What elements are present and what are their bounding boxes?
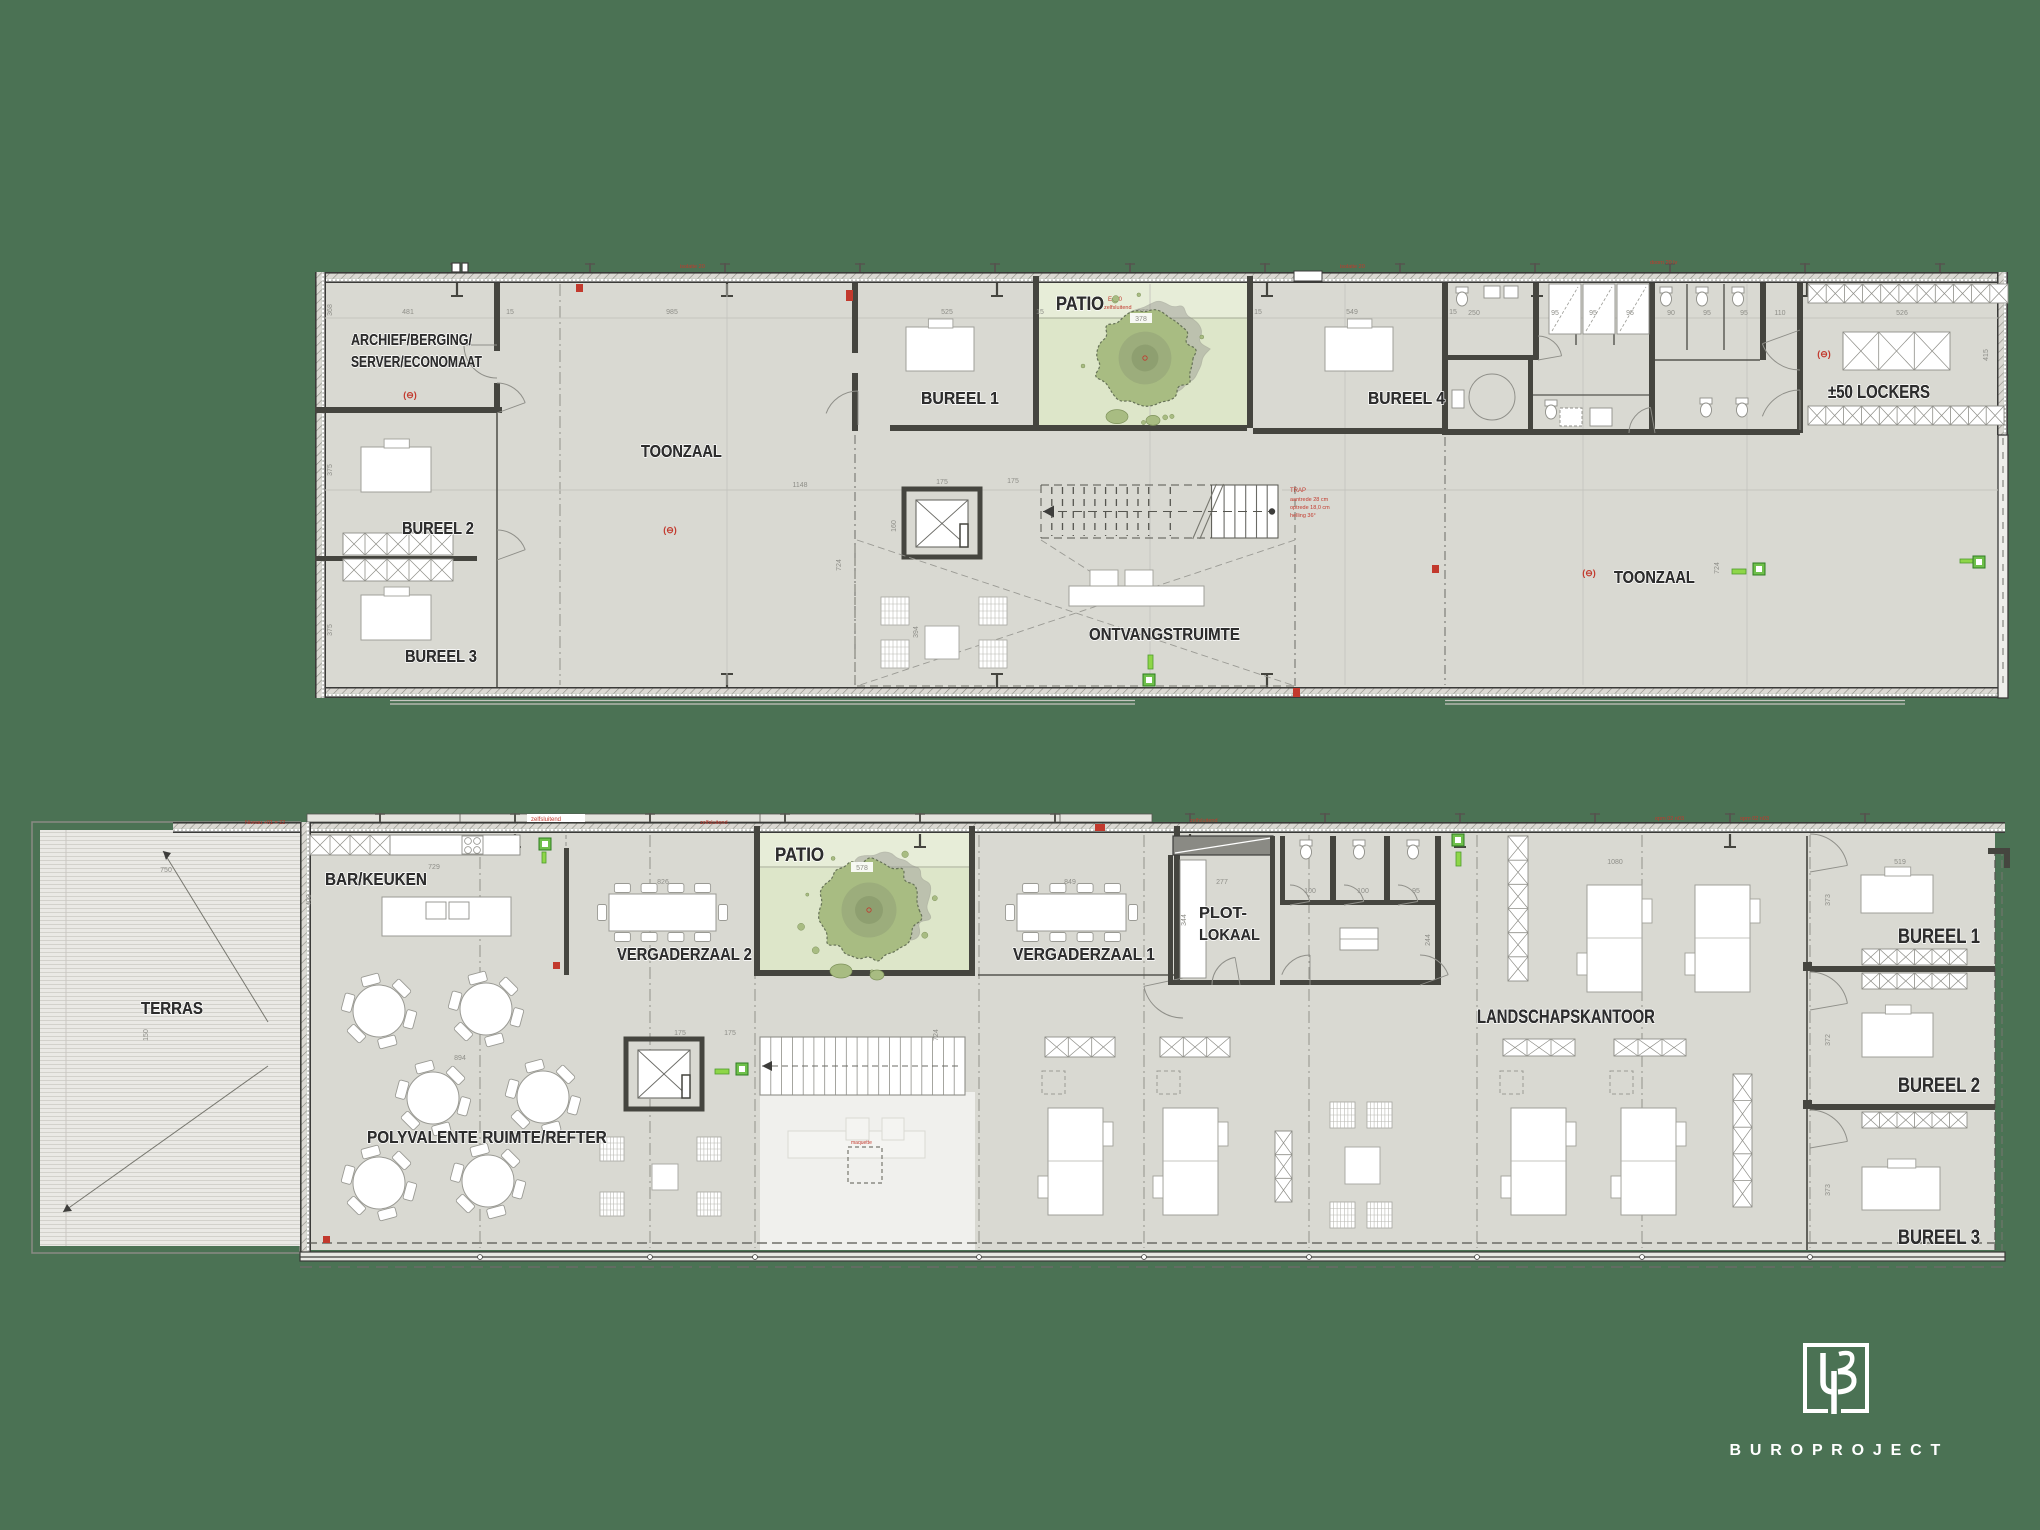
- svg-text:526: 526: [1896, 310, 1908, 317]
- svg-text:PLOT-: PLOT-: [1199, 904, 1247, 922]
- svg-text:578: 578: [856, 865, 868, 872]
- svg-text:409: 409: [306, 894, 313, 906]
- svg-text:175: 175: [1007, 478, 1019, 485]
- svg-text:ARCHIEF/BERGING/: ARCHIEF/BERGING/: [351, 332, 472, 350]
- svg-text:zelfsluitend: zelfsluitend: [1104, 305, 1132, 311]
- svg-text:95: 95: [1551, 310, 1559, 317]
- svg-text:(⊖): (⊖): [1582, 568, 1596, 578]
- svg-text:394: 394: [913, 626, 920, 638]
- svg-text:150: 150: [143, 1029, 150, 1041]
- svg-text:344: 344: [1181, 914, 1188, 926]
- svg-text:175: 175: [724, 1030, 736, 1037]
- svg-text:POLYVALENTE RUIMTE/REFTER: POLYVALENTE RUIMTE/REFTER: [367, 1127, 607, 1147]
- svg-text:SERVER/ECONOMAAT: SERVER/ECONOMAAT: [351, 353, 482, 371]
- svg-text:729: 729: [428, 864, 440, 871]
- svg-text:549: 549: [1346, 309, 1358, 316]
- svg-text:BUREEL 3: BUREEL 3: [1898, 1226, 1980, 1249]
- svg-text:175: 175: [936, 479, 948, 486]
- svg-text:opm 02 n03: opm 02 n03: [1655, 816, 1684, 822]
- svg-text:BUREEL 4: BUREEL 4: [1368, 388, 1446, 408]
- svg-text:1148: 1148: [792, 482, 807, 489]
- svg-text:100: 100: [1304, 888, 1316, 895]
- svg-text:VERGADERZAAL 2: VERGADERZAAL 2: [617, 945, 752, 965]
- svg-text:368: 368: [327, 304, 334, 316]
- svg-text:(⊖): (⊖): [663, 525, 677, 535]
- svg-text:373: 373: [1825, 1184, 1832, 1196]
- svg-text:VERGADERZAAL 1: VERGADERZAAL 1: [1013, 944, 1155, 964]
- svg-text:95: 95: [1703, 310, 1711, 317]
- svg-text:95: 95: [1412, 888, 1420, 895]
- svg-text:724: 724: [1714, 562, 1721, 574]
- svg-text:opm 02 n03: opm 02 n03: [1740, 816, 1769, 822]
- svg-text:LOKAAL: LOKAAL: [1199, 926, 1260, 944]
- svg-text:415: 415: [1983, 349, 1990, 361]
- svg-text:TOONZAAL: TOONZAAL: [1614, 568, 1695, 588]
- svg-text:375: 375: [327, 464, 334, 476]
- svg-text:ONTVANGSTRUIMTE: ONTVANGSTRUIMTE: [1089, 624, 1240, 645]
- svg-text:optrede 18,0 cm: optrede 18,0 cm: [1290, 505, 1330, 511]
- svg-text:B U R O P R O J E C T: B U R O P R O J E C T: [1729, 1442, 1942, 1459]
- svg-text:110: 110: [1774, 310, 1785, 317]
- svg-text:TERRAS: TERRAS: [141, 998, 203, 1019]
- svg-text:Niveau +01 = 22: Niveau +01 = 22: [245, 820, 285, 826]
- svg-text:maquette: maquette: [851, 1140, 872, 1146]
- svg-text:(⊖): (⊖): [403, 390, 417, 400]
- svg-text:15: 15: [506, 309, 514, 316]
- svg-text:BAR/KEUKEN: BAR/KEUKEN: [325, 869, 427, 889]
- svg-text:95: 95: [1589, 310, 1597, 317]
- svg-text:373: 373: [1825, 894, 1832, 906]
- svg-text:985: 985: [666, 309, 678, 316]
- svg-text:BUREEL 1: BUREEL 1: [1898, 925, 1980, 948]
- svg-text:724: 724: [836, 559, 843, 571]
- svg-text:15: 15: [1254, 309, 1262, 316]
- svg-text:244: 244: [1425, 934, 1432, 946]
- svg-text:378: 378: [1135, 316, 1147, 323]
- svg-text:15: 15: [1449, 309, 1457, 316]
- svg-text:PATIO: PATIO: [775, 844, 824, 865]
- svg-text:175: 175: [674, 1030, 686, 1037]
- svg-text:250: 250: [1468, 310, 1480, 317]
- svg-text:TRAP: TRAP: [1290, 488, 1306, 494]
- svg-text:372: 372: [1825, 1034, 1832, 1046]
- svg-text:LANDSCHAPSKANTOOR: LANDSCHAPSKANTOOR: [1477, 1006, 1655, 1027]
- svg-text:zelfsluitend: zelfsluitend: [700, 820, 728, 826]
- svg-text:724: 724: [933, 1029, 940, 1041]
- svg-text:100: 100: [1357, 888, 1369, 895]
- svg-text:160: 160: [891, 520, 898, 532]
- svg-text:519: 519: [1894, 859, 1906, 866]
- svg-text:826: 826: [657, 879, 669, 886]
- svg-text:(⊖): (⊖): [1817, 349, 1831, 359]
- svg-text:zelfsluitend: zelfsluitend: [1190, 818, 1218, 824]
- svg-text:isolatie 20: isolatie 20: [1340, 264, 1365, 270]
- svg-text:BUREEL 2: BUREEL 2: [1898, 1074, 1980, 1097]
- svg-text:doorn 20 lv: doorn 20 lv: [1650, 260, 1677, 266]
- svg-text:95: 95: [1740, 310, 1748, 317]
- svg-text:BUREEL 1: BUREEL 1: [921, 388, 999, 408]
- svg-text:277: 277: [1216, 879, 1228, 886]
- svg-text:1080: 1080: [1607, 859, 1623, 866]
- svg-text:PATIO: PATIO: [1056, 293, 1104, 314]
- svg-text:aantrede 28 cm: aantrede 28 cm: [1290, 497, 1329, 503]
- svg-text:BUREEL 3: BUREEL 3: [405, 647, 477, 667]
- svg-text:481: 481: [402, 309, 414, 316]
- svg-text:15: 15: [1036, 309, 1044, 316]
- svg-text:helling 36°: helling 36°: [1290, 513, 1316, 519]
- svg-text:849: 849: [1064, 879, 1076, 886]
- svg-text:±50 LOCKERS: ±50 LOCKERS: [1828, 382, 1930, 403]
- svg-text:894: 894: [454, 1055, 466, 1062]
- svg-text:750: 750: [160, 867, 172, 874]
- svg-text:90: 90: [1667, 310, 1675, 317]
- svg-text:TOONZAAL: TOONZAAL: [641, 442, 722, 462]
- svg-text:isolatie 20: isolatie 20: [680, 264, 705, 270]
- svg-text:95: 95: [1626, 310, 1634, 317]
- svg-text:525: 525: [941, 309, 953, 316]
- svg-text:BUREEL 2: BUREEL 2: [402, 519, 474, 539]
- svg-text:375: 375: [327, 624, 334, 636]
